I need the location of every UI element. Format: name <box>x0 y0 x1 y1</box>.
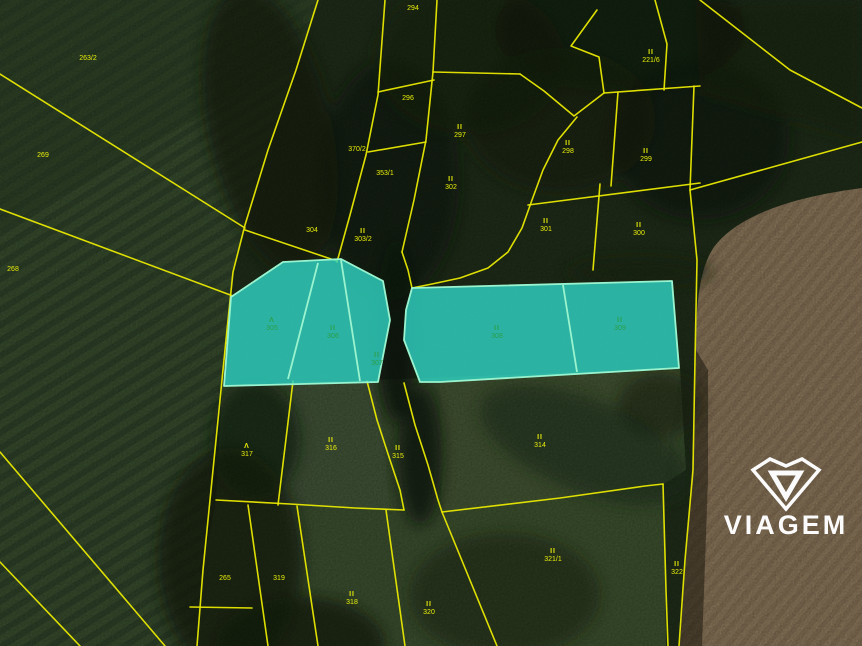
landuse-symbol: Λ <box>269 317 275 324</box>
parcel-label: 269 <box>37 152 49 159</box>
landuse-symbol: Λ <box>244 443 250 450</box>
highlighted-parcel-east-group[interactable] <box>404 281 679 382</box>
parcel-label: 314 <box>534 442 546 449</box>
parcel-label: 263/2 <box>79 55 97 62</box>
landuse-symbol: II <box>494 325 500 332</box>
landuse-symbol: II <box>426 601 432 608</box>
landuse-symbol: II <box>674 561 680 568</box>
parcel-label: 316 <box>325 445 337 452</box>
parcel-label: 268 <box>7 266 19 273</box>
highlighted-parcel-label: 307 <box>371 360 383 367</box>
parcel-label: 315 <box>392 453 404 460</box>
viagem-logo-text: VIAGEM <box>724 510 849 540</box>
parcel-label: 370/2 <box>348 146 366 153</box>
parcel-label: 319 <box>273 575 285 582</box>
parcel-label: 304 <box>306 227 318 234</box>
landuse-symbol: II <box>617 317 623 324</box>
landuse-symbol: II <box>457 124 463 131</box>
landuse-symbol: II <box>374 352 380 359</box>
parcel-label: 221/6 <box>642 57 660 64</box>
landuse-symbol: II <box>636 222 642 229</box>
parcel-label: 322 <box>671 569 683 576</box>
parcel-label: 294 <box>407 5 419 12</box>
landuse-symbol: II <box>648 49 654 56</box>
cadastral-map-image: 263/2 294 296 II297 II221/6 II298 II299 … <box>0 0 862 646</box>
landuse-symbol: II <box>395 445 401 452</box>
parcel-label: 318 <box>346 599 358 606</box>
parcel-label: 353/1 <box>376 170 394 177</box>
parcel-label: 320 <box>423 609 435 616</box>
parcel-label: 297 <box>454 132 466 139</box>
parcel-label: 265 <box>219 575 231 582</box>
parcel-label: 298 <box>562 148 574 155</box>
parcel-label: 321/1 <box>544 556 562 563</box>
highlighted-parcel-label: 305 <box>266 325 278 332</box>
landuse-symbol: II <box>448 176 454 183</box>
parcel-label: 300 <box>633 230 645 237</box>
landuse-symbol: II <box>328 437 334 444</box>
parcel-label: 303/2 <box>354 236 372 243</box>
landuse-symbol: II <box>360 228 366 235</box>
landuse-symbol: II <box>550 548 556 555</box>
highlighted-parcel-label: 306 <box>327 333 339 340</box>
landuse-symbol: II <box>537 434 543 441</box>
parcel-label: 302 <box>445 184 457 191</box>
landuse-symbol: II <box>543 218 549 225</box>
parcel-label: 317 <box>241 451 253 458</box>
landuse-symbol: II <box>643 148 649 155</box>
highlighted-parcel-label: 308 <box>491 333 503 340</box>
parcel-label: 296 <box>402 95 414 102</box>
landuse-symbol: II <box>349 591 355 598</box>
parcel-label: 301 <box>540 226 552 233</box>
landuse-symbol: II <box>330 325 336 332</box>
landuse-symbol: II <box>565 140 571 147</box>
parcel-label: 299 <box>640 156 652 163</box>
highlighted-parcel-label: 309 <box>614 325 626 332</box>
